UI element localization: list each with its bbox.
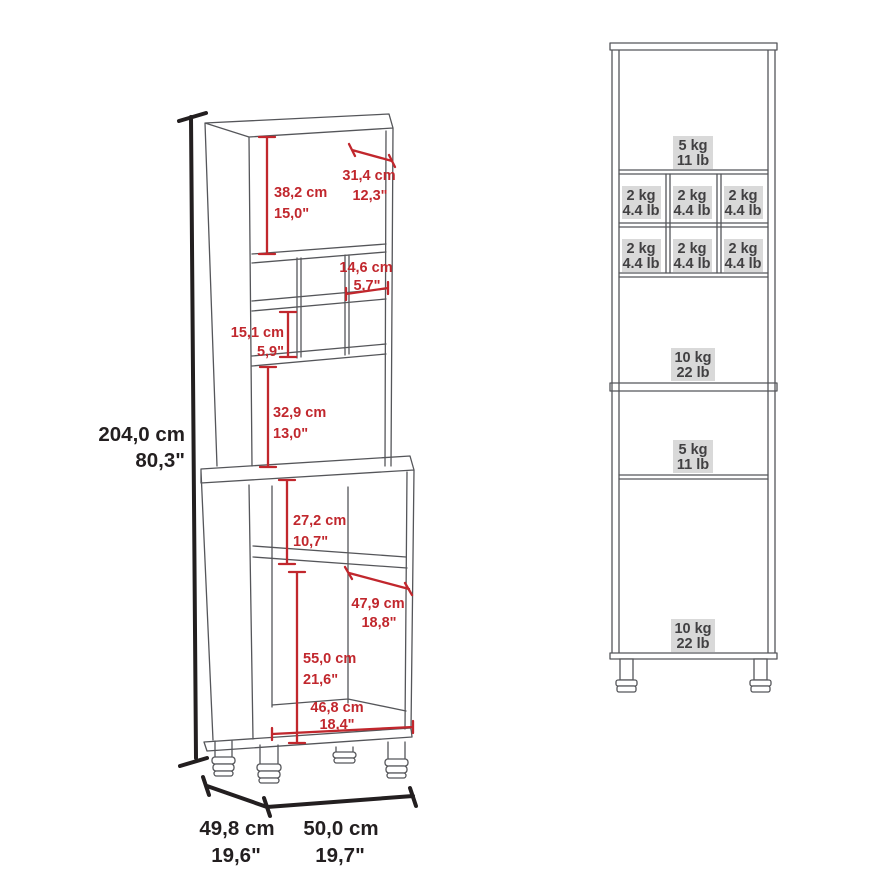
front-leg-left [616,659,637,692]
load-lb: 4.4 lb [673,203,710,219]
dim-cm: 15,1 cm [231,325,284,341]
load-kg: 5 kg [678,442,707,458]
dim-cm: 14,6 cm [339,260,392,276]
dim-in: 13,0" [273,426,308,442]
load-kg: 2 kg [626,241,655,257]
load-label-cubby-row2-left: 2 kg 4.4 lb [622,239,661,272]
load-kg: 5 kg [678,138,707,154]
height-dimension-line [191,117,196,758]
right-view-front-elevation: 5 kg 11 lb 2 kg 4.4 lb 2 kg 4.4 lb 2 kg … [610,43,777,692]
load-kg: 2 kg [626,188,655,204]
load-label-cubby-row2-right: 2 kg 4.4 lb [724,239,763,272]
dimension-top-depth: 31,4 cm 12,3" [342,144,395,204]
load-label-cubby-row1-right: 2 kg 4.4 lb [724,186,763,219]
overall-depth-cm: 49,8 cm [199,817,274,840]
dim-cm: 47,9 cm [351,596,404,612]
load-lb: 22 lb [676,636,709,652]
dim-cm: 38,2 cm [274,185,327,201]
leg-front-right [385,742,408,778]
dim-cm: 46,8 cm [310,700,363,716]
dim-in: 18,8" [361,615,396,631]
load-lb: 4.4 lb [724,203,761,219]
dim-in: 15,0" [274,206,309,222]
overall-width-cm: 50,0 cm [303,817,378,840]
dim-cm: 32,9 cm [273,405,326,421]
load-lb: 4.4 lb [724,256,761,272]
diagram-svg: 204,0 cm 80,3" [0,0,895,895]
left-view-perspective: 204,0 cm 80,3" [98,113,416,867]
load-kg: 10 kg [674,621,711,637]
load-kg: 2 kg [728,241,757,257]
front-view-legs [616,659,771,692]
load-lb: 11 lb [677,153,709,169]
load-lb: 4.4 lb [673,256,710,272]
front-leg-right [750,659,771,692]
dim-cm: 55,0 cm [303,651,356,667]
overall-height-cm: 204,0 cm [98,423,185,446]
load-label-cubby-row1-center: 2 kg 4.4 lb [673,186,712,219]
load-kg: 2 kg [677,188,706,204]
load-label-bottom-shelf: 10 kg 22 lb [671,619,715,652]
load-lb: 22 lb [676,365,709,381]
load-lb: 4.4 lb [622,203,659,219]
dim-in: 21,6" [303,672,338,688]
load-kg: 2 kg [728,188,757,204]
dim-cm: 31,4 cm [342,168,395,184]
dimension-middle-opening-height: 32,9 cm 13,0" [260,367,326,467]
load-lb: 11 lb [677,457,709,473]
dim-in: 12,3" [352,188,387,204]
load-kg: 2 kg [677,241,706,257]
dimension-interior-depth: 47,9 cm 18,8" [345,567,412,631]
load-label-base-shelf: 5 kg 11 lb [673,440,713,473]
cabinet-legs [212,741,408,783]
overall-width-in: 19,7" [315,844,365,867]
dim-in: 10,7" [293,534,328,550]
load-label-top-shelf: 5 kg 11 lb [673,136,713,169]
dimension-interior-width: 46,8 cm 18,4" [272,700,413,740]
load-label-cubby-row1-left: 2 kg 4.4 lb [622,186,661,219]
dim-cm: 27,2 cm [293,513,346,529]
load-kg: 10 kg [674,350,711,366]
overall-depth-in: 19,6" [211,844,261,867]
overall-depth-dimension: 49,8 cm 19,6" [199,777,274,867]
leg-front-left [212,741,235,776]
load-lb: 4.4 lb [622,256,659,272]
overall-width-dimension: 50,0 cm 19,7" [264,788,416,867]
overall-height-dimension: 204,0 cm 80,3" [98,113,207,766]
dimension-cubby-width: 14,6 cm 5,7" [339,260,392,300]
furniture-dimension-diagram: 204,0 cm 80,3" [0,0,895,895]
dim-in: 5,9" [257,344,284,360]
dimension-hutch-opening-height: 38,2 cm 15,0" [259,137,327,254]
overall-height-in: 80,3" [135,449,185,472]
load-label-cubby-row2-center: 2 kg 4.4 lb [673,239,712,272]
load-label-middle-shelf: 10 kg 22 lb [671,348,715,381]
leg-front-center [257,745,281,783]
leg-back-center [333,747,356,763]
